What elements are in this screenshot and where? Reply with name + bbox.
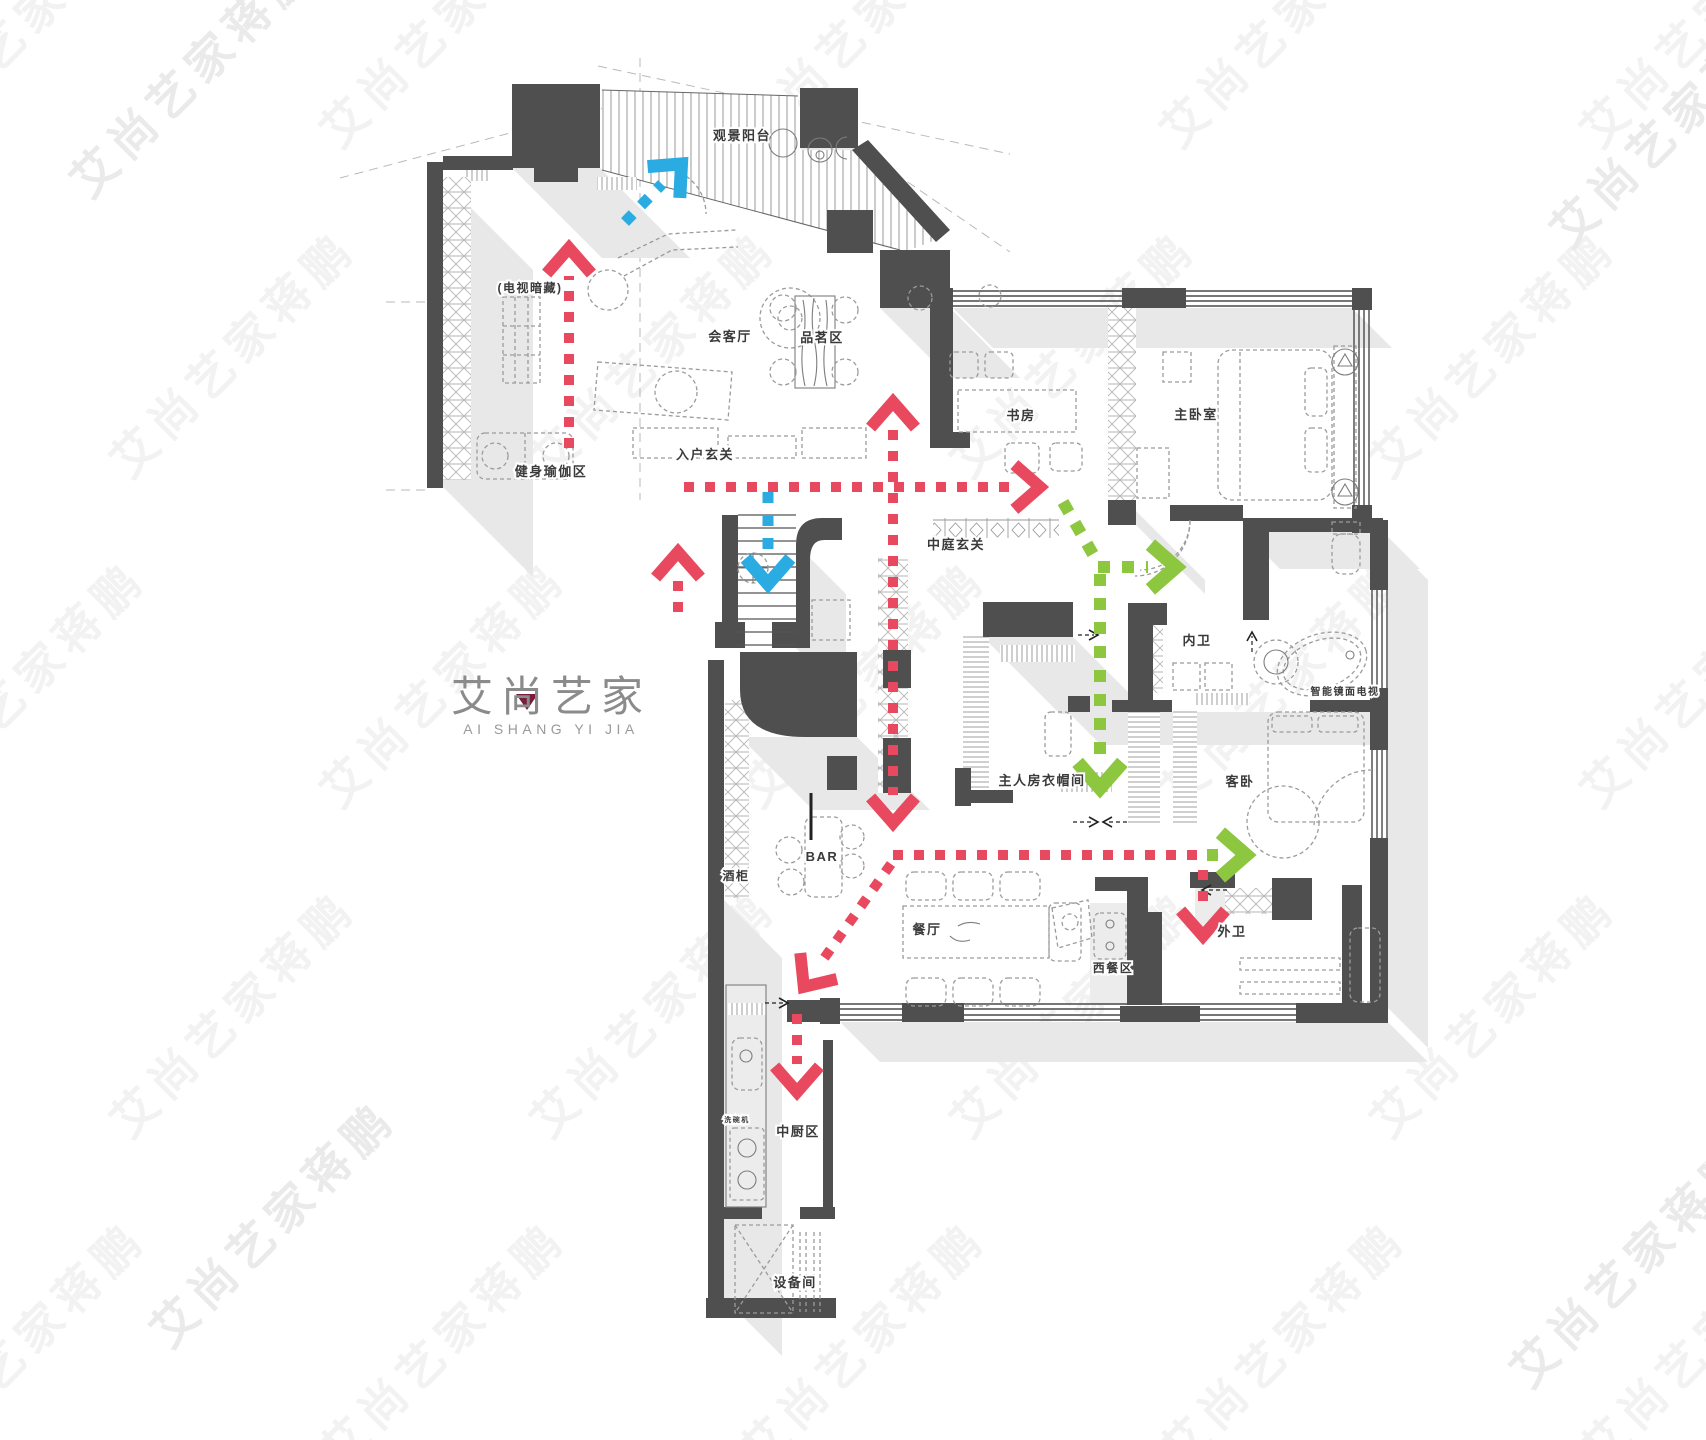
floor-plan-page: 艾尚艺家蒋鹏艾尚艺家蒋鹏艾尚艺家蒋鹏艾尚艺家蒋鹏艾尚艺家蒋鹏艾尚艺家蒋鹏艾尚艺家… <box>0 0 1706 1440</box>
room-label-tea-area: 品茗区 <box>800 330 844 345</box>
flow-arrowhead-red <box>800 953 837 987</box>
flow-arrowhead-red <box>547 248 592 274</box>
brand-logo: 艾尚艺家 AI SHANG YI JIA <box>420 676 682 737</box>
room-label-dishwasher: 洗碗机 <box>724 1115 750 1124</box>
flow-arrowhead-red <box>1014 465 1040 510</box>
watermark-text: 艾尚艺家蒋鹏 <box>0 1211 156 1440</box>
watermark-text: 艾尚艺家蒋鹏 <box>1150 1211 1416 1440</box>
watermark-text: 艾尚艺家蒋鹏 <box>1150 0 1416 157</box>
floor-plan-svg: 艾尚艺家蒋鹏艾尚艺家蒋鹏艾尚艺家蒋鹏艾尚艺家蒋鹏艾尚艺家蒋鹏艾尚艺家蒋鹏艾尚艺家… <box>0 0 1706 1440</box>
watermark-text: 艾尚艺家蒋鹏 <box>100 881 366 1147</box>
flow-arrowhead-green <box>1220 833 1246 878</box>
room-label-study: 书房 <box>1006 408 1035 423</box>
room-label-dining: 餐厅 <box>911 922 941 937</box>
room-label-outer-bath: 外卫 <box>1216 924 1246 939</box>
watermark-text: 艾尚艺家蒋鹏 <box>100 221 366 487</box>
watermark-text: 艾尚艺家蒋鹏 <box>1570 551 1706 817</box>
room-label-bar: BAR <box>806 849 839 864</box>
room-label-view-balcony: 观景阳台 <box>713 128 771 143</box>
room-label-mirror-tv: 智能镜面电视 <box>1311 685 1380 698</box>
watermark-text: 艾尚艺家蒋鹏 <box>140 1091 406 1357</box>
room-label-atrium-foyer: 中庭玄关 <box>927 537 985 552</box>
watermark-text: 艾尚艺家蒋鹏 <box>0 551 156 817</box>
room-label-equipment-room: 设备间 <box>773 1275 817 1290</box>
watermark-text: 艾尚艺家蒋鹏 <box>60 0 326 207</box>
brand-logo-title: 艾尚艺家 <box>420 676 682 718</box>
room-label-gym-yoga: 健身瑜伽区 <box>515 464 588 479</box>
room-label-chinese-kitchen: 中厨区 <box>776 1124 820 1139</box>
room-label-tv-hidden: (电视暗藏) <box>498 280 563 295</box>
flow-arrowhead-red <box>871 402 916 428</box>
room-label-master-closet: 主人房衣帽间 <box>998 773 1085 788</box>
flow-arrowhead-red <box>656 552 701 578</box>
room-label-entry-foyer: 入户玄关 <box>676 447 734 462</box>
room-label-western-dining: 西餐区 <box>1093 960 1134 975</box>
room-label-reception: 会客厅 <box>708 329 752 344</box>
watermark-text: 艾尚艺家蒋鹏 <box>1360 221 1626 487</box>
room-label-inner-bath: 内卫 <box>1182 633 1211 648</box>
brand-logo-subtitle: AI SHANG YI JIA <box>420 721 682 737</box>
flow-path-red-diag-kitchen <box>820 864 891 964</box>
room-label-wine-cabinet: 酒柜 <box>722 868 749 883</box>
room-label-master-bedroom: 主卧室 <box>1174 407 1218 422</box>
flow-path-green-diag <box>1063 502 1094 556</box>
room-label-guest-bedroom: 客卧 <box>1225 774 1254 789</box>
watermark-text: 艾尚艺家蒋鹏 <box>310 1211 576 1440</box>
